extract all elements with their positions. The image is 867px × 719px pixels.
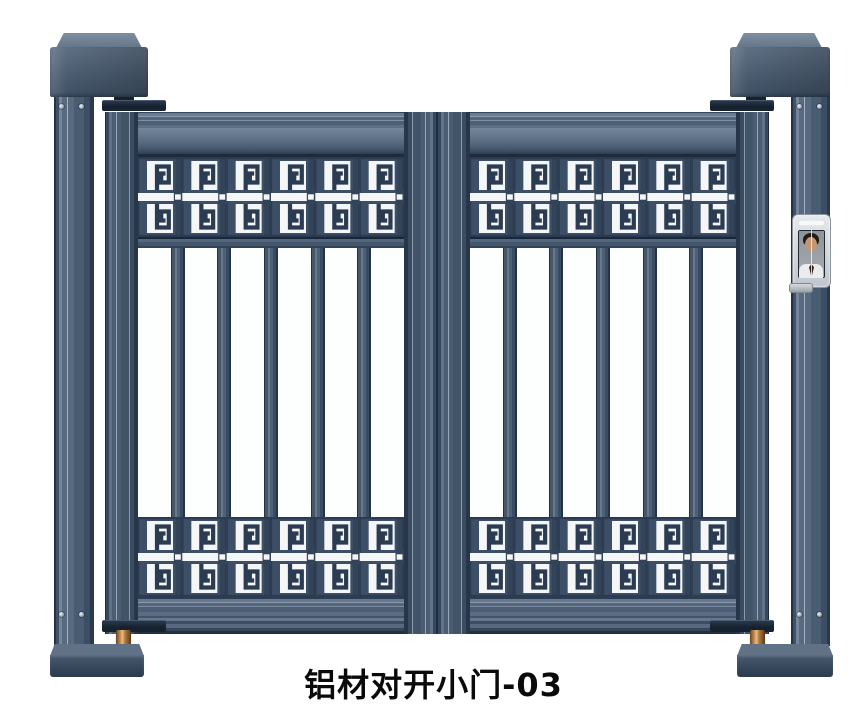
greek-key-unit: [514, 517, 558, 597]
bar-gap: [517, 248, 550, 517]
greek-key-unit: [514, 157, 558, 237]
greek-key-unit: [559, 157, 603, 237]
vertical-bar: [503, 248, 517, 517]
left-post: [54, 96, 94, 646]
vertical-bar: [311, 248, 325, 517]
left-post-cap: [50, 47, 148, 97]
vertical-bar: [357, 248, 371, 517]
left-bottom-hinge-bracket: [102, 620, 166, 632]
bar-gap: [185, 248, 218, 517]
bar-gap: [138, 248, 171, 517]
mid-divider-rail: [470, 237, 736, 248]
right-post: [791, 96, 830, 646]
right-hinge-pivot: [750, 630, 765, 646]
top-rail: [470, 128, 736, 157]
vertical-bar: [171, 248, 185, 517]
vertical-bar: [643, 248, 657, 517]
panel-interior: [138, 112, 404, 634]
greek-key-band-top: [470, 157, 736, 237]
screw: [59, 612, 64, 617]
left-post-cap-top: [56, 33, 142, 48]
bar-gap: [563, 248, 596, 517]
right-post-cap-top: [736, 33, 822, 48]
greek-key-unit: [182, 517, 226, 597]
greek-key-band-bottom: [138, 517, 404, 597]
greek-key-unit: [360, 517, 404, 597]
bar-gap: [470, 248, 503, 517]
right-top-hinge-bracket: [710, 100, 774, 111]
greek-key-unit: [227, 157, 271, 237]
meeting-stile: [404, 112, 437, 634]
terminal-light-bar: [798, 220, 825, 226]
vertical-bar: [596, 248, 610, 517]
gate-product-image: 铝材对开小门-03: [0, 0, 867, 719]
greek-key-unit: [360, 157, 404, 237]
panel-interior: [470, 112, 736, 634]
screw: [59, 104, 64, 109]
greek-key-pattern: [138, 157, 404, 237]
face-scan-line-icon: [811, 230, 812, 278]
bar-gap: [371, 248, 404, 517]
greek-key-band-bottom: [470, 517, 736, 597]
bar-gap: [610, 248, 643, 517]
bottom-rail: [470, 612, 736, 634]
greek-key-unit: [138, 157, 182, 237]
gate-panel-left: [105, 112, 437, 634]
greek-key-unit: [271, 157, 315, 237]
mid-divider-rail: [138, 237, 404, 248]
greek-key-unit: [559, 517, 603, 597]
top-edge-strip: [138, 112, 404, 128]
bottom-rail: [138, 612, 404, 634]
greek-key-unit: [182, 157, 226, 237]
top-edge-strip: [470, 112, 736, 128]
bottom-edge-strip: [138, 597, 404, 612]
greek-key-unit: [692, 517, 736, 597]
vertical-bar: [549, 248, 563, 517]
left-hinge-pivot: [116, 630, 131, 646]
greek-key-unit: [647, 157, 691, 237]
bar-gap: [703, 248, 736, 517]
vertical-bar: [217, 248, 231, 517]
greek-key-pattern: [470, 157, 736, 237]
greek-key-unit: [315, 157, 359, 237]
greek-key-pattern: [470, 517, 736, 597]
vertical-bar: [689, 248, 703, 517]
top-rail: [138, 128, 404, 157]
hinge-stile: [736, 112, 769, 634]
greek-key-unit: [315, 517, 359, 597]
vertical-bars-section: [470, 248, 736, 517]
greek-key-unit: [470, 157, 514, 237]
screw: [797, 104, 802, 109]
screw: [79, 612, 84, 617]
face-recognition-terminal: [793, 215, 830, 287]
screw: [817, 104, 822, 109]
product-caption: 铝材对开小门-03: [0, 660, 867, 706]
meeting-stile: [437, 112, 470, 634]
greek-key-unit: [470, 517, 514, 597]
greek-key-pattern: [138, 517, 404, 597]
hinge-stile: [105, 112, 138, 634]
greek-key-unit: [271, 517, 315, 597]
vertical-bar: [264, 248, 278, 517]
greek-key-unit: [603, 157, 647, 237]
bar-gap: [657, 248, 690, 517]
greek-key-band-top: [138, 157, 404, 237]
vertical-bars-section: [138, 248, 404, 517]
greek-key-unit: [138, 517, 182, 597]
screw: [79, 104, 84, 109]
terminal-screen: [798, 230, 825, 278]
screw: [797, 612, 802, 617]
left-top-hinge-bracket: [102, 100, 166, 111]
right-post-cap: [730, 47, 830, 97]
bottom-edge-strip: [470, 597, 736, 612]
greek-key-unit: [692, 157, 736, 237]
bar-gap: [231, 248, 264, 517]
gate-panel-right: [437, 112, 769, 634]
greek-key-unit: [603, 517, 647, 597]
greek-key-unit: [227, 517, 271, 597]
bar-gap: [325, 248, 358, 517]
screw: [817, 612, 822, 617]
greek-key-unit: [647, 517, 691, 597]
card-reader: [790, 284, 812, 292]
bar-gap: [278, 248, 311, 517]
